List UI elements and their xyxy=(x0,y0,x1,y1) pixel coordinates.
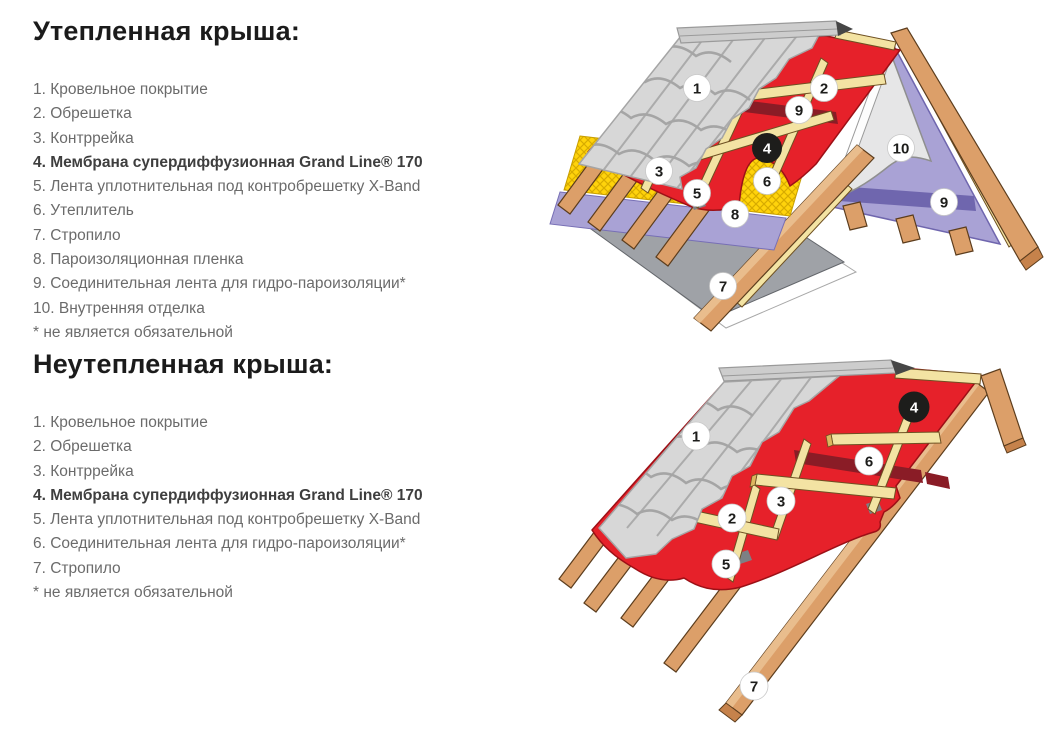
section-title-insulated: Утепленная крыша: xyxy=(33,16,538,47)
cold-roof-illustration: 1 4 6 3 2 5 7 xyxy=(544,346,1045,736)
legend-list-insulated: 1. Кровельное покрытие 2. Обрешетка 3. К… xyxy=(33,78,538,345)
legend-item: 2. Обрешетка xyxy=(33,435,538,459)
callout-4: 4 xyxy=(899,392,930,423)
callout-1: 1 xyxy=(684,75,711,102)
svg-text:4: 4 xyxy=(763,141,772,158)
legend-item-membrane: 4. Мембрана супердиффузионная Grand Line… xyxy=(33,484,538,508)
legend-list-cold: 1. Кровельное покрытие 2. Обрешетка 3. К… xyxy=(33,411,538,605)
svg-text:6: 6 xyxy=(865,454,873,471)
legend-item: 8. Пароизоляционная пленка xyxy=(33,248,538,272)
svg-text:4: 4 xyxy=(910,400,919,417)
svg-text:9: 9 xyxy=(795,103,803,120)
callout-3: 3 xyxy=(646,158,673,185)
footnote: * не является обязательной xyxy=(33,581,538,605)
callout-3: 3 xyxy=(767,487,795,515)
legend-item-membrane: 4. Мембрана супердиффузионная Grand Line… xyxy=(33,151,538,175)
diagram-cold-roof: 1 4 6 3 2 5 7 xyxy=(544,346,1045,736)
callout-6: 6 xyxy=(754,168,781,195)
page: { "sections": { "insulated": { "title": … xyxy=(0,0,1046,736)
legend-item: 7. Стропило xyxy=(33,557,538,581)
callout-9b: 9 xyxy=(931,189,958,216)
callout-10: 10 xyxy=(888,135,915,162)
svg-text:5: 5 xyxy=(693,186,701,203)
svg-text:1: 1 xyxy=(692,429,700,446)
svg-text:9: 9 xyxy=(940,195,948,212)
legend-item: 3. Контррейка xyxy=(33,127,538,151)
section-title-cold: Неутепленная крыша: xyxy=(33,349,538,380)
svg-text:6: 6 xyxy=(763,174,771,191)
svg-text:3: 3 xyxy=(777,494,785,511)
callout-7: 7 xyxy=(710,273,737,300)
legend-item: 1. Кровельное покрытие xyxy=(33,78,538,102)
legend-insulated-roof: Утепленная крыша: 1. Кровельное покрытие… xyxy=(33,16,538,345)
callout-2: 2 xyxy=(718,504,746,532)
legend-cold-roof: Неутепленная крыша: 1. Кровельное покрыт… xyxy=(33,349,538,605)
legend-item: 2. Обрешетка xyxy=(33,102,538,126)
svg-text:7: 7 xyxy=(719,279,727,296)
legend-item: 10. Внутренняя отделка xyxy=(33,297,538,321)
svg-text:2: 2 xyxy=(820,81,828,98)
callout-5: 5 xyxy=(684,180,711,207)
legend-item: 7. Стропило xyxy=(33,224,538,248)
legend-item: 6. Соединительная лента для гидро-пароиз… xyxy=(33,532,538,556)
svg-text:10: 10 xyxy=(893,141,910,158)
footnote: * не является обязательной xyxy=(33,321,538,345)
callout-7: 7 xyxy=(740,672,768,700)
callout-2: 2 xyxy=(811,75,838,102)
legend-item: 5. Лента уплотнительная под контробрешет… xyxy=(33,508,538,532)
apex-rafter xyxy=(981,369,1026,453)
svg-text:2: 2 xyxy=(728,511,736,528)
callout-1: 1 xyxy=(682,422,710,450)
legend-item: 6. Утеплитель xyxy=(33,199,538,223)
legend-item: 9. Соединительная лента для гидро-пароиз… xyxy=(33,272,538,296)
callout-9a: 9 xyxy=(786,97,813,124)
svg-text:5: 5 xyxy=(722,557,730,574)
callout-4: 4 xyxy=(752,133,782,163)
svg-text:8: 8 xyxy=(731,207,739,224)
svg-text:7: 7 xyxy=(750,679,758,696)
callout-5: 5 xyxy=(712,550,740,578)
svg-text:1: 1 xyxy=(693,81,701,98)
legend-item: 5. Лента уплотнительная под контробрешет… xyxy=(33,175,538,199)
svg-text:3: 3 xyxy=(655,164,663,181)
callout-8: 8 xyxy=(722,201,749,228)
diagram-insulated-roof: 1 2 9 4 3 5 6 8 7 10 9 xyxy=(544,0,1045,340)
callout-6: 6 xyxy=(855,447,883,475)
legend-item: 1. Кровельное покрытие xyxy=(33,411,538,435)
legend-item: 3. Контррейка xyxy=(33,460,538,484)
insulated-roof-illustration: 1 2 9 4 3 5 6 8 7 10 9 xyxy=(544,0,1045,340)
